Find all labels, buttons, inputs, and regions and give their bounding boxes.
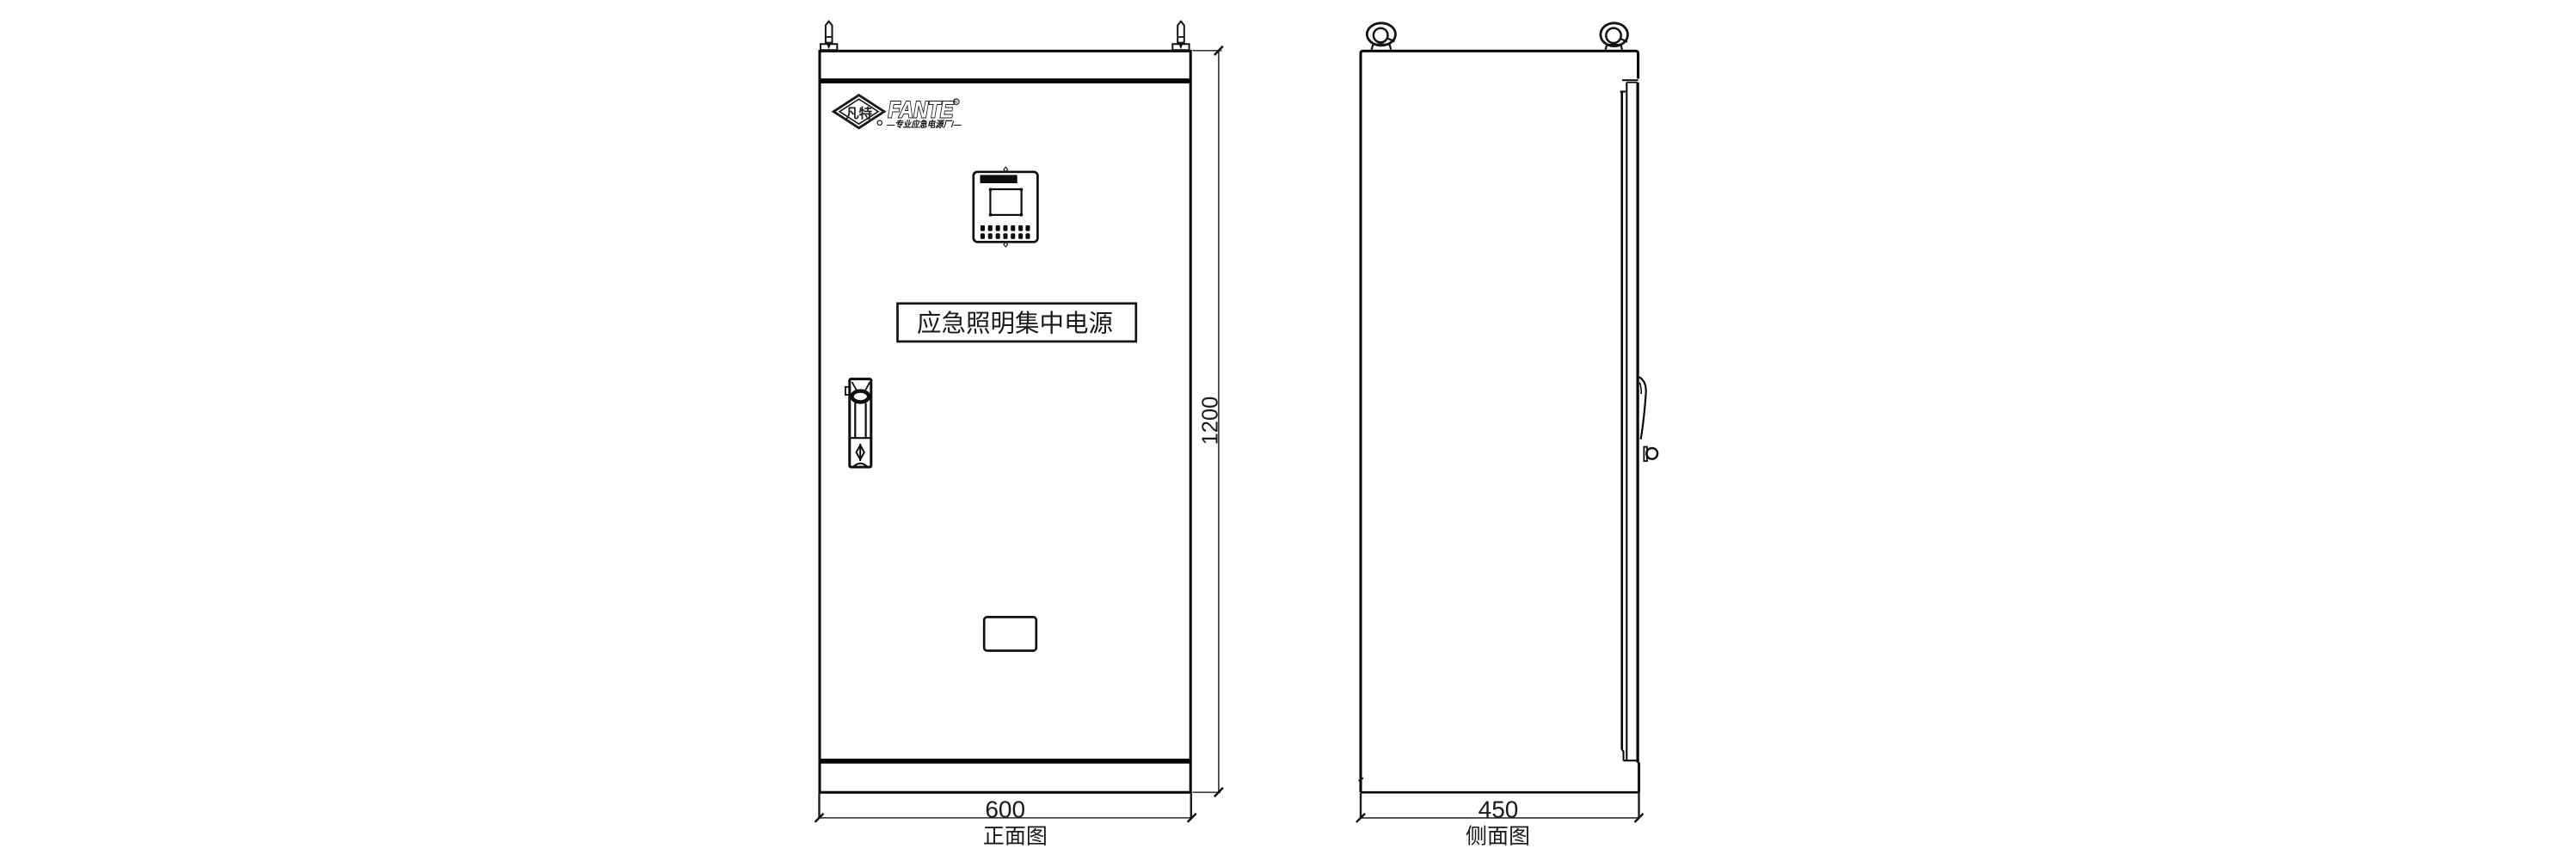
svg-text:应急照明集中电源: 应急照明集中电源 <box>917 310 1113 337</box>
svg-text:FANTE: FANTE <box>888 96 955 122</box>
svg-text:—专业应急电源厂/—: —专业应急电源厂/— <box>886 119 962 130</box>
svg-text:450: 450 <box>1479 796 1519 823</box>
svg-text:1200: 1200 <box>1198 397 1222 446</box>
svg-text:凡特: 凡特 <box>845 105 873 121</box>
svg-text:R: R <box>955 101 958 106</box>
svg-text:600: 600 <box>985 796 1025 823</box>
svg-text:正面图: 正面图 <box>983 825 1048 849</box>
svg-text:侧面图: 侧面图 <box>1466 825 1530 849</box>
